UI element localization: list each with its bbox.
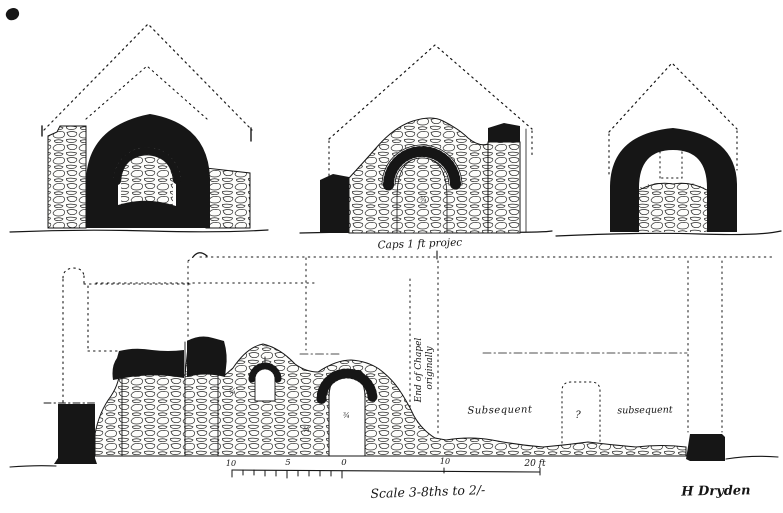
section-caption: Caps 1 ft projec	[377, 237, 462, 252]
east-gable-elevation	[556, 63, 781, 236]
ink-blemish	[6, 8, 19, 20]
svg-text:originally: originally	[425, 345, 435, 389]
scale-label-10-right: 10	[440, 457, 450, 466]
measure-mark: ¾	[343, 412, 350, 420]
black-pier-right	[686, 434, 725, 461]
subsequent-label-right: subsequent	[617, 405, 673, 417]
scale-bar: 10 5 0 10 20 ft Scale 3-8ths to 2/-	[226, 457, 546, 501]
black-pier-right-cap	[488, 123, 520, 142]
dashed-top-line	[188, 257, 772, 350]
ground-line	[10, 230, 268, 232]
scale-label-20ft: 20 ft	[523, 459, 546, 469]
black-pier-far-left	[54, 404, 97, 464]
ceiling-outline-dashed	[86, 66, 207, 119]
dashed-doorway-outline	[562, 382, 600, 443]
scale-ticks	[232, 468, 540, 478]
blocking-rubble-fill	[639, 182, 707, 232]
black-band	[113, 349, 185, 380]
stone-pier-right	[488, 142, 520, 233]
section-elevation: ¾ Caps 1 ft projec	[300, 45, 552, 251]
chapel-end-note: End of Chapel originally	[414, 338, 435, 404]
scale-line	[232, 470, 540, 472]
solid-squiggle	[193, 253, 207, 257]
scanned-architectural-drawing: ¾ Caps 1 ft projec	[0, 0, 783, 513]
signature: H Dryden	[680, 483, 751, 499]
svg-text:End of Chapel: End of Chapel	[414, 338, 424, 404]
measure-mark: ¾	[303, 426, 310, 434]
drawing-canvas: ¾ Caps 1 ft projec	[0, 0, 783, 513]
ground-line-right	[726, 456, 778, 459]
black-band-hump	[187, 337, 227, 377]
black-pier-left	[320, 174, 349, 233]
stone-wall-right	[206, 168, 250, 228]
measure-mark: ¾	[420, 196, 427, 204]
measure-mark: ¾	[229, 388, 236, 396]
ground-line-far-left	[10, 466, 56, 467]
scale-label-0: 0	[341, 458, 347, 468]
scale-label-5: 5	[285, 458, 290, 468]
west-gable-elevation	[10, 24, 268, 232]
subsequent-label-left: Subsequent	[467, 404, 533, 416]
scale-caption: Scale 3-8ths to 2/-	[370, 482, 485, 501]
dashed-pier-outline-right	[688, 261, 722, 432]
query-mark: ?	[575, 410, 581, 421]
doorway-dark-base	[118, 201, 176, 228]
stone-wall-left	[48, 126, 86, 228]
scale-label-10-left: 10	[226, 459, 236, 468]
dashdot-mid-line	[300, 353, 687, 354]
long-wall-elevation: ¾ ¾ ¾ End of Chapel originally Subsequen…	[10, 251, 778, 467]
roof-outline-dashed	[44, 24, 252, 130]
roof-outline-dashed	[609, 63, 737, 132]
